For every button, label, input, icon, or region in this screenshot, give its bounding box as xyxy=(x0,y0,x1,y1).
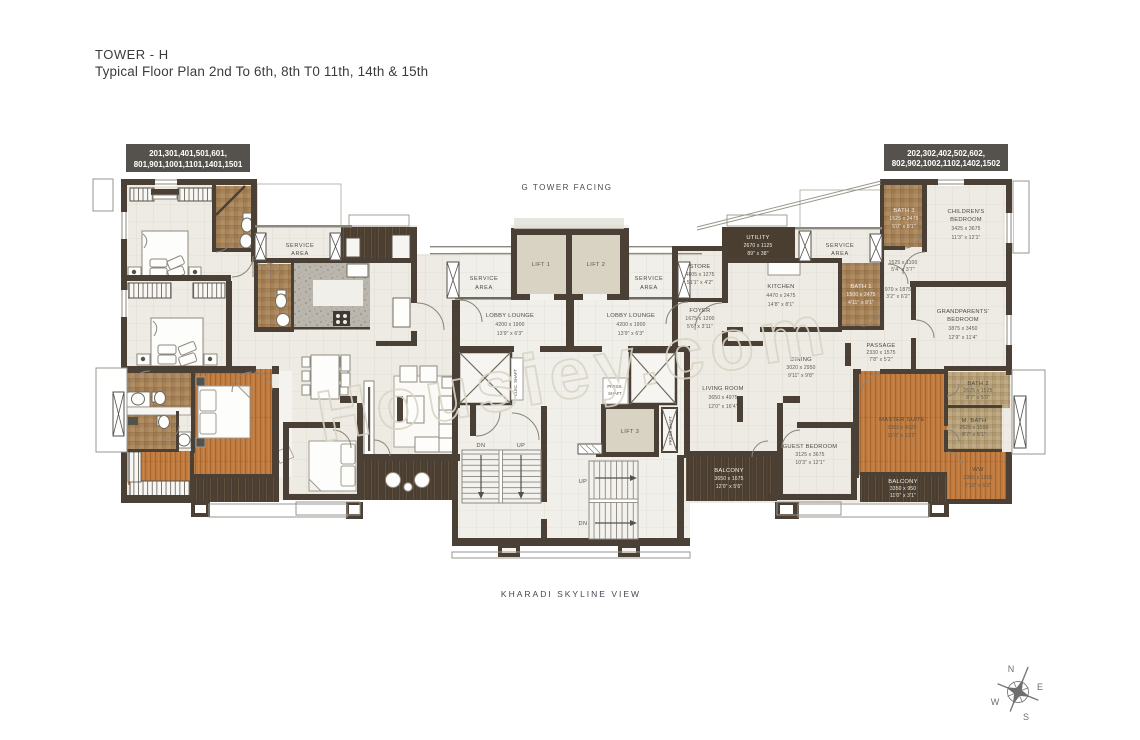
svg-text:Typical Floor Plan 2nd To 6th,: Typical Floor Plan 2nd To 6th, 8th T0 11… xyxy=(95,64,428,79)
svg-text:STORE: STORE xyxy=(689,264,710,270)
svg-text:SERVICE: SERVICE xyxy=(826,243,855,249)
svg-text:UP: UP xyxy=(579,479,588,485)
svg-text:M. BATH: M. BATH xyxy=(962,418,987,424)
svg-text:W: W xyxy=(991,697,1000,707)
svg-text:GUEST BEDROOM: GUEST BEDROOM xyxy=(783,444,838,450)
svg-text:LOBBY LOUNGE: LOBBY LOUNGE xyxy=(486,313,534,319)
svg-text:KITCHEN: KITCHEN xyxy=(767,284,794,290)
svg-text:11'0" x 3'1": 11'0" x 3'1" xyxy=(890,493,916,499)
svg-text:8'7" x 5'0": 8'7" x 5'0" xyxy=(966,395,990,401)
svg-text:LIFT 3: LIFT 3 xyxy=(621,429,639,435)
svg-text:PASSAGE: PASSAGE xyxy=(866,343,895,349)
svg-text:BALCONY: BALCONY xyxy=(888,479,917,485)
svg-text:4805 x 1275: 4805 x 1275 xyxy=(685,272,714,278)
svg-text:970 x 1875: 970 x 1875 xyxy=(885,287,911,293)
svg-text:801,901,1001,1101,1401,1501: 801,901,1001,1101,1401,1501 xyxy=(134,160,243,169)
svg-text:4'11" x 8'1": 4'11" x 8'1" xyxy=(848,300,874,306)
svg-text:AREA: AREA xyxy=(475,285,493,291)
svg-text:WW: WW xyxy=(972,467,984,473)
svg-text:12'0" x 5'6": 12'0" x 5'6" xyxy=(716,484,743,490)
svg-text:LOBBY LOUNGE: LOBBY LOUNGE xyxy=(607,313,655,319)
svg-text:N: N xyxy=(1008,664,1015,674)
svg-text:2390 x 1900: 2390 x 1900 xyxy=(963,475,992,481)
svg-text:12'9" x 11'4": 12'9" x 11'4" xyxy=(948,335,977,341)
svg-text:202,302,402,502,602,: 202,302,402,502,602, xyxy=(907,149,985,158)
svg-text:51'1" x 4'2": 51'1" x 4'2" xyxy=(687,280,714,286)
svg-text:SERVICE: SERVICE xyxy=(286,243,315,249)
svg-text:2670 x 1125: 2670 x 1125 xyxy=(744,243,773,249)
svg-text:UP: UP xyxy=(517,443,526,449)
svg-text:1500 x 2475: 1500 x 2475 xyxy=(846,292,875,298)
svg-text:11'0" x 13'2": 11'0" x 13'2" xyxy=(887,433,916,439)
svg-text:3125 x 3675: 3125 x 3675 xyxy=(795,452,824,458)
svg-text:2625 x 1525: 2625 x 1525 xyxy=(963,388,992,394)
svg-text:5'0" x 8'1": 5'0" x 8'1" xyxy=(892,224,916,230)
svg-text:4200 x 1900: 4200 x 1900 xyxy=(495,322,524,328)
svg-text:11'3" x 12'1": 11'3" x 12'1" xyxy=(951,235,980,241)
svg-text:S: S xyxy=(1023,712,1029,722)
svg-text:KHARADI SKYLINE VIEW: KHARADI SKYLINE VIEW xyxy=(501,589,641,599)
svg-text:GRANDPARENTS': GRANDPARENTS' xyxy=(937,309,989,315)
svg-text:3425 x 3675: 3425 x 3675 xyxy=(951,226,980,232)
svg-text:AREA: AREA xyxy=(640,285,658,291)
svg-text:1525 x 2475: 1525 x 2475 xyxy=(889,216,918,222)
svg-text:3650 x 1675: 3650 x 1675 xyxy=(714,476,743,482)
svg-text:DN: DN xyxy=(477,443,486,449)
svg-text:LIFT 2: LIFT 2 xyxy=(587,262,605,268)
svg-text:CHILDREN'S: CHILDREN'S xyxy=(947,209,984,215)
svg-text:LIFT 1: LIFT 1 xyxy=(532,262,550,268)
svg-text:BEDROOM: BEDROOM xyxy=(947,317,979,323)
svg-text:PRESS SHAFT: PRESS SHAFT xyxy=(668,415,673,445)
svg-text:TOWER - H: TOWER - H xyxy=(95,47,169,62)
svg-text:BEDROOM: BEDROOM xyxy=(950,217,982,223)
svg-text:7'10" x 6'3": 7'10" x 6'3" xyxy=(965,483,992,489)
svg-text:8'7" x 5'1": 8'7" x 5'1" xyxy=(962,432,986,438)
svg-text:5'4" x 3'7": 5'4" x 3'7" xyxy=(891,267,915,273)
svg-text:3350 x 4025: 3350 x 4025 xyxy=(887,425,916,431)
svg-text:201,301,401,501,601,: 201,301,401,501,601, xyxy=(149,149,227,158)
svg-text:13'9" x 6'3": 13'9" x 6'3" xyxy=(497,331,524,337)
svg-text:12'0" x 16'4": 12'0" x 16'4" xyxy=(708,404,737,410)
svg-text:BATH 3: BATH 3 xyxy=(893,208,914,214)
svg-text:DN: DN xyxy=(579,521,588,527)
svg-text:BATH 2: BATH 2 xyxy=(967,381,988,387)
svg-text:UTILITY: UTILITY xyxy=(746,235,769,241)
svg-text:AREA: AREA xyxy=(831,251,849,257)
svg-text:7'8" x 5'2": 7'8" x 5'2" xyxy=(869,357,893,363)
svg-text:2625 x 1550: 2625 x 1550 xyxy=(959,425,988,431)
svg-text:10'3" x 12'1": 10'3" x 12'1" xyxy=(795,460,824,466)
svg-text:802,902,1002,1102,1402,1502: 802,902,1002,1102,1402,1502 xyxy=(892,159,1001,168)
svg-text:89" x 38": 89" x 38" xyxy=(747,251,768,257)
svg-text:BALCONY: BALCONY xyxy=(714,468,743,474)
svg-text:G TOWER FACING: G TOWER FACING xyxy=(522,183,613,192)
svg-text:E: E xyxy=(1037,682,1043,692)
svg-text:3350 x 950: 3350 x 950 xyxy=(890,486,916,492)
svg-text:AREA: AREA xyxy=(291,251,309,257)
svg-text:BATH 1: BATH 1 xyxy=(850,284,871,290)
svg-text:3650 x 4975: 3650 x 4975 xyxy=(708,395,737,401)
svg-text:1525 x 1100: 1525 x 1100 xyxy=(889,260,918,266)
svg-text:2330 x 1575: 2330 x 1575 xyxy=(866,350,895,356)
svg-text:SERVICE: SERVICE xyxy=(635,276,664,282)
svg-text:MASTER SUITE: MASTER SUITE xyxy=(879,417,925,423)
svg-text:3875 x 3450: 3875 x 3450 xyxy=(948,326,977,332)
svg-text:3'2" x 6'2": 3'2" x 6'2" xyxy=(886,294,910,300)
svg-text:SERVICE: SERVICE xyxy=(470,276,499,282)
